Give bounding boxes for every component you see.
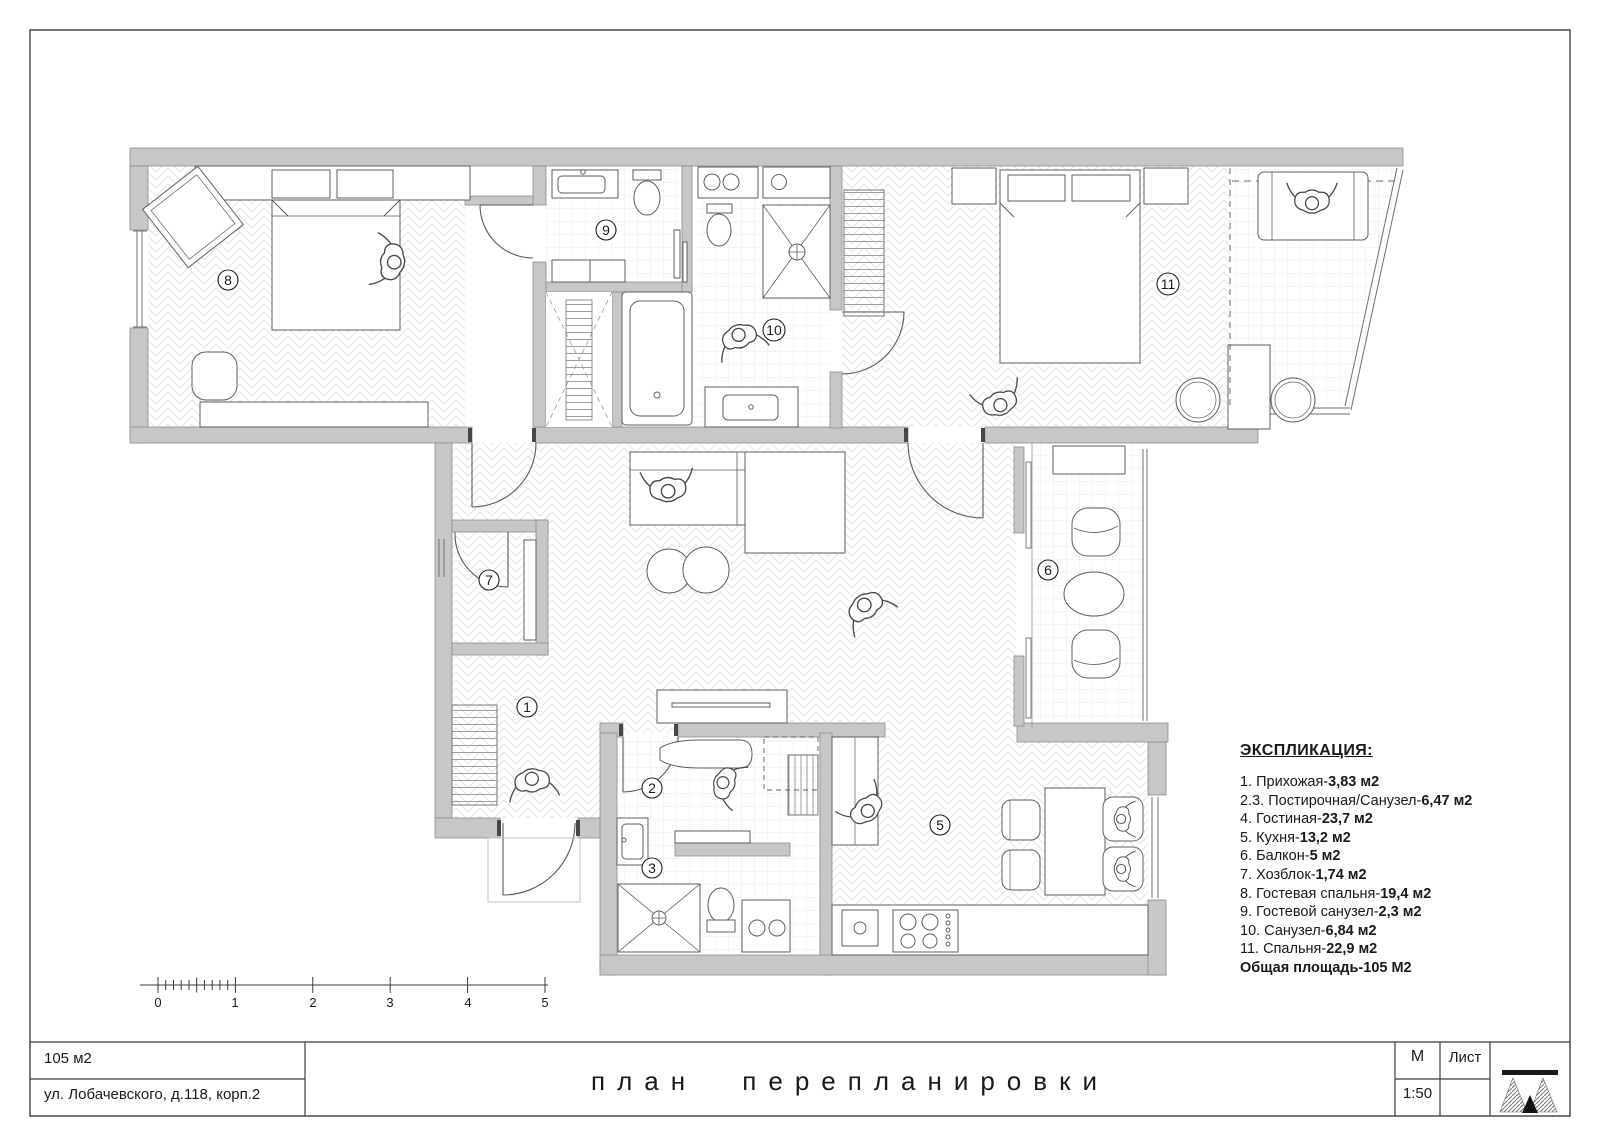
titleblock-sheet-label: Лист [1440, 1049, 1490, 1066]
legend-item-label: 6. Балкон- [1240, 848, 1310, 864]
shower-wc [618, 884, 700, 952]
legend-title: ЭКСПЛИКАЦИЯ: [1240, 742, 1580, 760]
kitchen-counter [832, 905, 1148, 955]
balcony-glazing-icon [1143, 449, 1147, 721]
wardrobe-bedroom [844, 190, 884, 316]
laundry-counter-bathroom [698, 167, 830, 198]
washer-column [788, 755, 818, 815]
room-label-8: 8 [218, 270, 238, 290]
titleblock-scale-label: М [1395, 1048, 1440, 1066]
vanity-bathroom [705, 387, 798, 427]
chair-guest-bedroom [192, 352, 237, 400]
room-label-10: 10 [763, 319, 785, 341]
room-label-9: 9 [596, 220, 616, 240]
wardrobe-guest-bedroom [195, 166, 470, 200]
legend-item-area: 6,47 м2 [1421, 793, 1472, 809]
bathtub [622, 292, 692, 425]
balcony-door [1014, 443, 1032, 728]
drawing-sheet: 1 2 3 5 6 7 8 9 10 11 0 1 2 3 4 5 [0, 0, 1600, 1146]
console-bedroom [1228, 345, 1270, 429]
coffee-table-2 [683, 547, 729, 593]
legend-item-area: 19,4 м2 [1380, 886, 1431, 902]
legend-item: 2.3. Постирочная/Санузел-6,47 м2 [1240, 792, 1580, 811]
legend-item: 1. Прихожая-3,83 м2 [1240, 773, 1580, 792]
balcony-shelf [1053, 446, 1125, 474]
room-number: 10 [766, 322, 782, 338]
legend-item-label: 11. Спальня- [1240, 941, 1326, 957]
room-label-2: 2 [642, 778, 662, 798]
pouf-bedroom-2 [1271, 378, 1315, 422]
legend-item-label: 10. Санузел- [1240, 923, 1326, 939]
legend-item: 4. Гостиная-23,7 м2 [1240, 810, 1580, 829]
window-dining-icon [1152, 797, 1158, 898]
entry-vestibule-outline [488, 838, 580, 902]
legend-total: Общая площадь-105 М2 [1240, 959, 1580, 978]
room-number: 9 [602, 222, 610, 238]
legend: ЭКСПЛИКАЦИЯ: 1. Прихожая-3,83 м2 2.3. По… [1240, 742, 1580, 978]
toilet-wc [707, 888, 735, 932]
cabinet-guest-wc-2 [590, 260, 625, 282]
room-number: 8 [224, 272, 232, 288]
legend-item: 6. Балкон-5 м2 [1240, 847, 1580, 866]
sink-guest-wc [552, 170, 618, 198]
cabinet-guest-wc-1 [552, 260, 590, 282]
scale-label: 3 [386, 995, 393, 1010]
legend-item-area: 5 м2 [1310, 848, 1341, 864]
legend-item-area: 13,2 м2 [1300, 830, 1351, 846]
pouf-bedroom-1 [1176, 378, 1220, 422]
room-label-6: 6 [1038, 560, 1058, 580]
legend-item-label: 2.3. Постирочная/Санузел- [1240, 793, 1421, 809]
legend-item-area: 1,74 м2 [1316, 867, 1367, 883]
room-number: 1 [523, 699, 531, 715]
room-label-11: 11 [1157, 273, 1179, 295]
room-label-3: 3 [642, 858, 662, 878]
balcony-poufs [1064, 508, 1124, 678]
scale-label: 5 [541, 995, 548, 1010]
room-number: 3 [648, 860, 656, 876]
logo-bar-icon [1502, 1070, 1558, 1075]
toilet-guest-wc [633, 170, 661, 215]
legend-item-area: 6,84 м2 [1326, 923, 1377, 939]
window-guest-bedroom-icon [133, 231, 147, 327]
legend-item-label: 5. Кухня- [1240, 830, 1300, 846]
logo [1500, 1070, 1558, 1113]
shower-bathroom [763, 205, 830, 298]
titleblock-address: ул. Лобачевского, д.118, корп.2 [44, 1086, 260, 1103]
tv-console [657, 690, 787, 723]
scale-label: 2 [309, 995, 316, 1010]
room-label-1: 1 [517, 697, 537, 717]
laundry-counter [675, 831, 750, 843]
legend-item-area: 3,83 м2 [1328, 774, 1379, 790]
scale-labels: 0 1 2 3 4 5 [154, 995, 548, 1010]
sink-wc [742, 900, 790, 952]
legend-item: 7. Хозблок-1,74 м2 [1240, 866, 1580, 885]
scale-label: 0 [154, 995, 161, 1010]
titleblock-area: 105 м2 [44, 1050, 92, 1067]
desk-guest-bedroom [200, 402, 428, 427]
legend-item: 11. Спальня-22,9 м2 [1240, 940, 1580, 959]
door-guest-wc-icon [480, 205, 533, 258]
legend-item: 9. Гостевой санузел-2,3 м2 [1240, 903, 1580, 922]
hozblok-cabinet [524, 540, 536, 640]
room-label-5: 5 [930, 815, 950, 835]
legend-item-label: 9. Гостевой санузел- [1240, 904, 1379, 920]
titleblock-scale-value: 1:50 [1395, 1085, 1440, 1102]
room-label-7: 7 [479, 570, 499, 590]
scale-label: 4 [464, 995, 471, 1010]
legend-item: 10. Санузел-6,84 м2 [1240, 922, 1580, 941]
legend-item-area: 22,9 м2 [1326, 941, 1377, 957]
legend-item: 8. Гостевая спальня-19,4 м2 [1240, 885, 1580, 904]
ironing-board [660, 740, 752, 768]
scale-label: 1 [231, 995, 238, 1010]
hall-wardrobe [452, 705, 497, 805]
room-number: 5 [936, 817, 944, 833]
door-entrance-icon [503, 823, 575, 895]
room-number: 7 [485, 572, 493, 588]
legend-item-label: 7. Хозблок- [1240, 867, 1316, 883]
stove-icon [893, 910, 958, 952]
legend-item-label: 1. Прихожая- [1240, 774, 1328, 790]
legend-item-area: 23,7 м2 [1322, 811, 1373, 827]
toilet-bathroom [707, 204, 732, 246]
room-number: 6 [1044, 562, 1052, 578]
legend-item-label: 8. Гостевая спальня- [1240, 886, 1380, 902]
drawing-title: план перепланировки [305, 1066, 1395, 1097]
room-number: 2 [648, 780, 656, 796]
legend-items: 1. Прихожая-3,83 м2 2.3. Постирочная/Сан… [1240, 773, 1580, 959]
legend-item-label: 4. Гостиная- [1240, 811, 1322, 827]
sink-laundry [617, 818, 648, 865]
legend-item-area: 2,3 м2 [1379, 904, 1422, 920]
legend-item: 5. Кухня-13,2 м2 [1240, 829, 1580, 848]
scale-bar: 0 1 2 3 4 5 [140, 977, 549, 1010]
dining-table [1045, 788, 1105, 895]
shower-niche [546, 292, 612, 427]
room-number: 11 [1161, 276, 1176, 292]
logo-triangle-left-icon [1500, 1078, 1527, 1112]
